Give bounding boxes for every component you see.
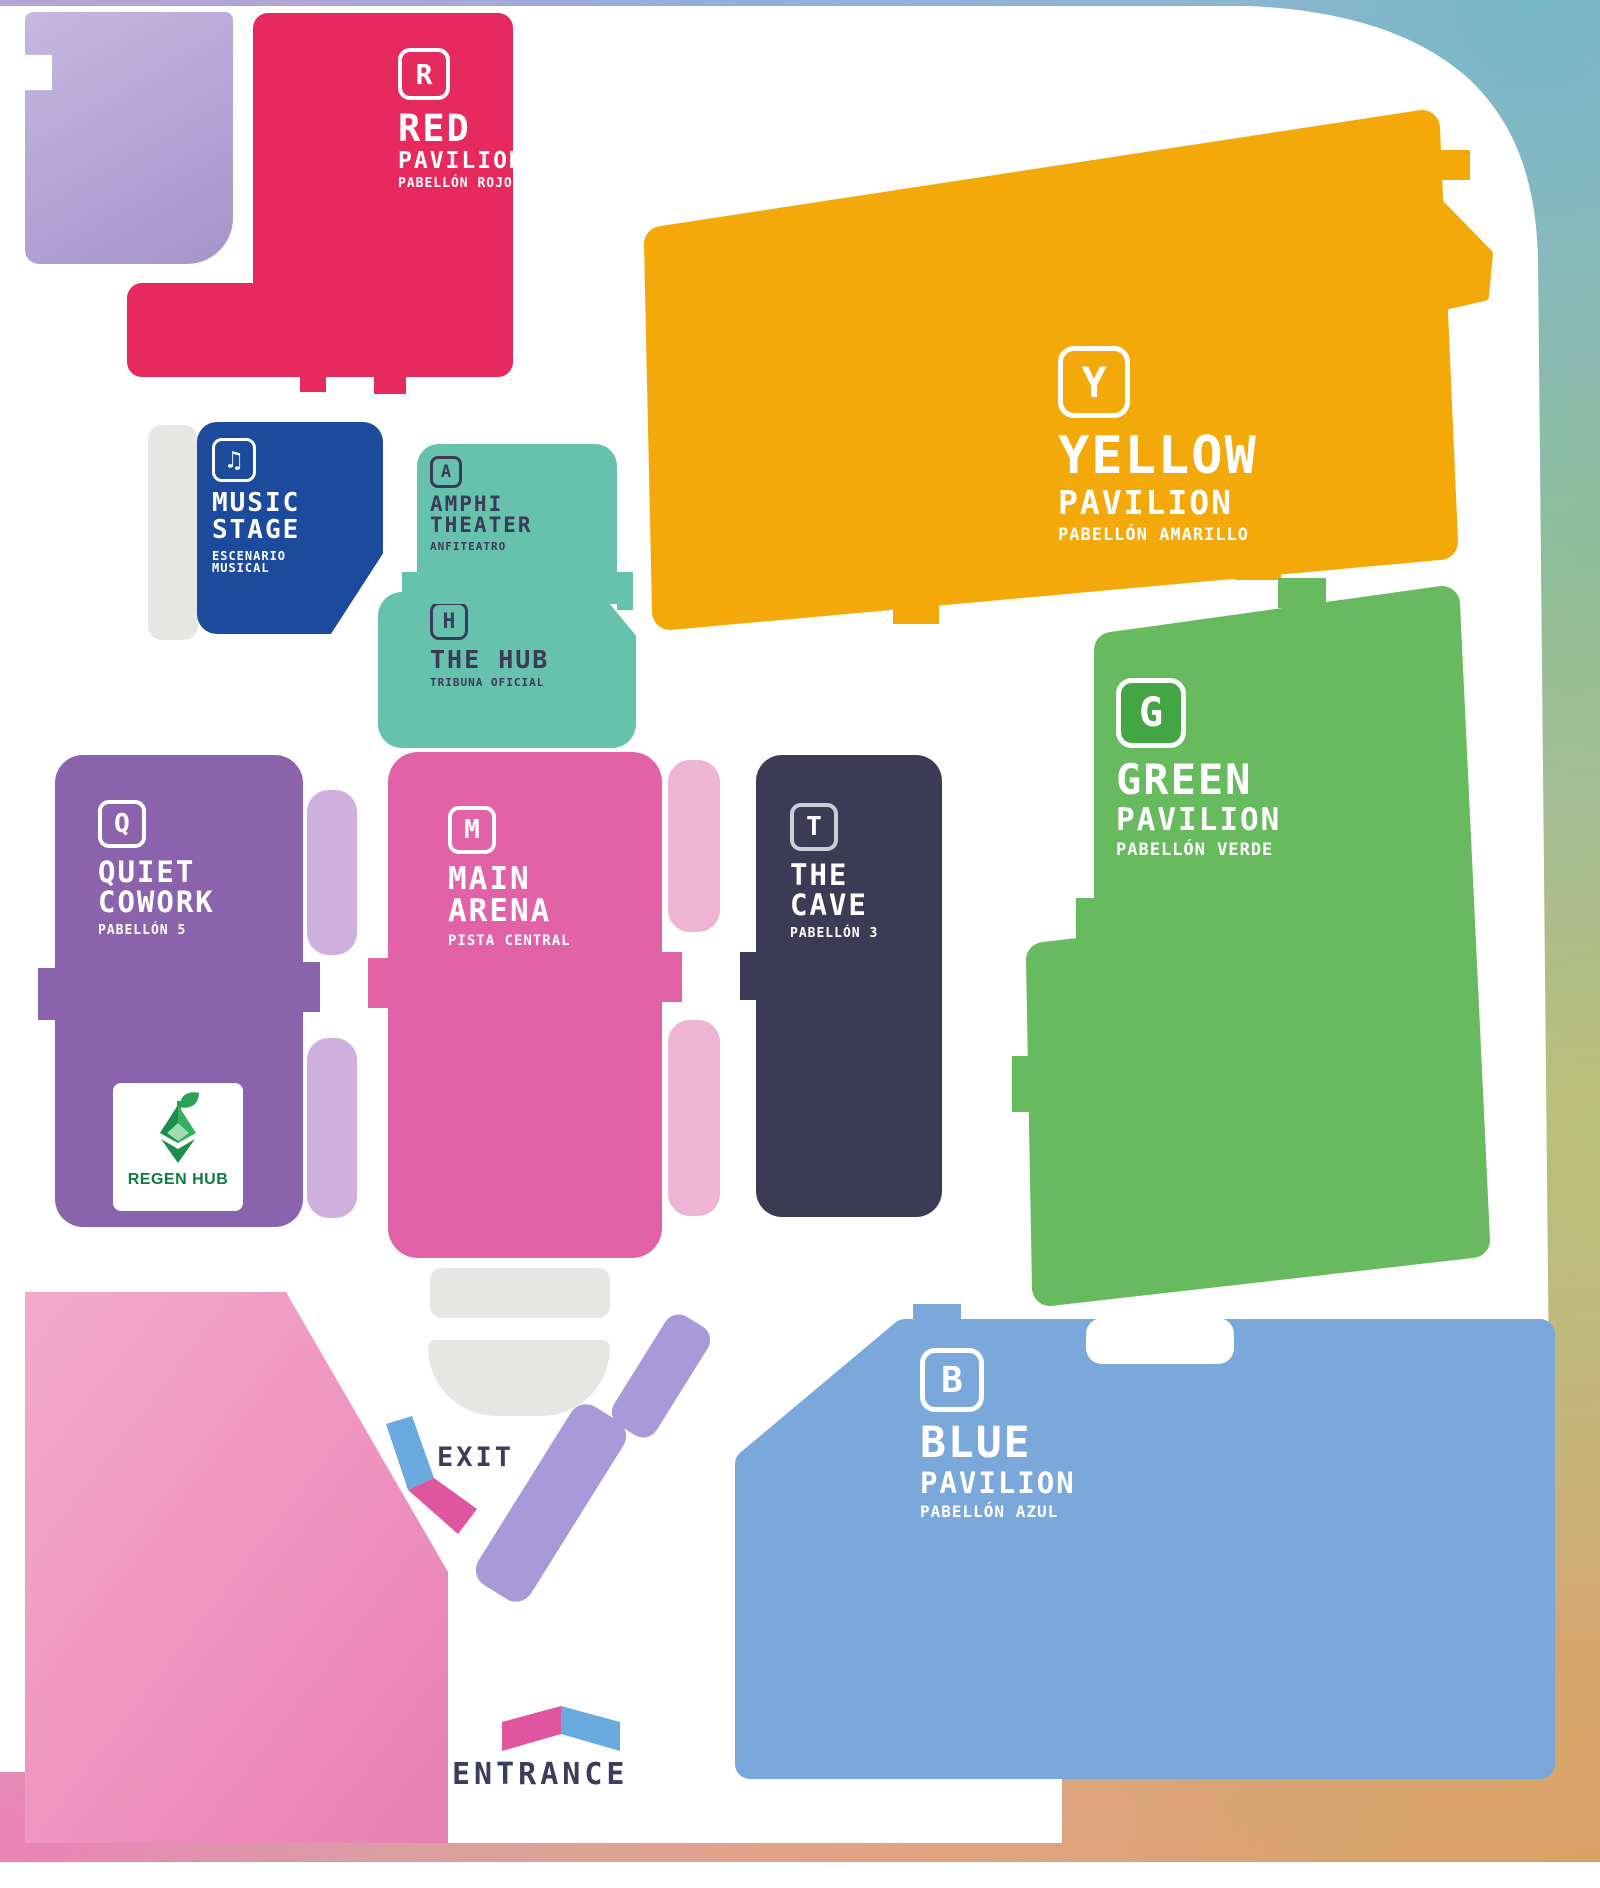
- green-pavilion-name: GREEN: [1116, 759, 1281, 802]
- main-arena-name-line2: ARENA: [448, 896, 662, 928]
- entrance-label: ENTRANCE: [452, 1760, 629, 1791]
- red-pavilion-label: R RED PAVILION PABELLÓN ROJO: [398, 48, 525, 190]
- yellow-pavilion-tab: [1235, 554, 1281, 580]
- quiet-cowork-tab: [38, 968, 58, 1020]
- connector-lilac: [307, 790, 357, 955]
- regen-hub-booth[interactable]: REGEN HUB: [113, 1083, 243, 1211]
- red-pavilion-type: PAVILION: [398, 150, 525, 173]
- red-pavilion-icon: R: [398, 48, 450, 100]
- the-hub-subtitle: TRIBUNA OFICIAL: [430, 677, 636, 688]
- the-hub-building[interactable]: H THE HUB TRIBUNA OFICIAL: [378, 592, 636, 748]
- connector-lilac: [307, 1038, 357, 1218]
- yellow-pavilion-name: YELLOW: [1058, 430, 1258, 483]
- the-cave-name-line1: THE: [790, 861, 942, 891]
- blue-pavilion-icon: B: [920, 1348, 984, 1412]
- amphitheater-icon: A: [430, 456, 462, 488]
- main-arena-tab: [368, 958, 390, 1008]
- service-area-gray: [148, 425, 198, 640]
- green-pavilion-tab: [1076, 898, 1112, 950]
- green-pavilion-icon: G: [1116, 678, 1186, 748]
- exit-label: EXIT: [437, 1444, 514, 1472]
- quiet-cowork-subtitle: PABELLÓN 5: [98, 924, 303, 937]
- quiet-cowork-name-line1: QUIET: [98, 858, 303, 888]
- red-pavilion-subtitle: PABELLÓN ROJO: [398, 177, 525, 190]
- main-arena-icon: M: [448, 806, 496, 854]
- blue-pavilion-type: PAVILION: [920, 1469, 1076, 1499]
- red-pavilion-name: RED: [398, 110, 525, 148]
- yellow-pavilion-subtitle: PABELLÓN AMARILLO: [1058, 527, 1258, 544]
- main-arena-subtitle: PISTA CENTRAL: [448, 934, 662, 948]
- amphitheater-side-tab: [402, 572, 418, 610]
- the-cave-tab: [740, 952, 758, 1000]
- amphitheater-side-tab: [617, 572, 633, 610]
- blue-pavilion-tab: [913, 1304, 961, 1338]
- regen-hub-logo: [150, 1089, 206, 1165]
- connector-pink: [668, 1020, 720, 1216]
- blue-pavilion-shape[interactable]: [750, 1334, 1540, 1764]
- green-pavilion-tab: [1278, 578, 1326, 608]
- service-area-gray: [430, 1268, 610, 1318]
- green-pavilion-label: G GREEN PAVILION PABELLÓN VERDE: [1116, 678, 1281, 860]
- blue-pavilion-name: BLUE: [920, 1422, 1076, 1466]
- blue-pavilion-subtitle: PABELLÓN AZUL: [920, 1504, 1076, 1520]
- map-white-bottom-strip: [0, 1862, 1600, 1888]
- yellow-pavilion-type: PAVILION: [1058, 486, 1258, 520]
- amphitheater-name-line1: AMPHI: [430, 494, 617, 515]
- quiet-cowork-name-line2: COWORK: [98, 888, 303, 918]
- music-note-icon: ♫: [212, 438, 256, 482]
- yellow-pavilion-tab: [1438, 150, 1470, 180]
- amphitheater-building[interactable]: A AMPHI THEATER ANFITEATRO: [417, 444, 617, 604]
- venue-map: ♫ MUSIC STAGE ESCENARIO MUSICAL H THE HU…: [0, 0, 1600, 1888]
- green-pavilion-subtitle: PABELLÓN VERDE: [1116, 842, 1281, 859]
- yellow-pavilion-tab: [893, 596, 939, 624]
- the-cave-building[interactable]: T THE CAVE PABELLÓN 3: [756, 755, 942, 1217]
- music-stage-subtitle-line2: MUSICAL: [212, 562, 383, 574]
- main-arena-name-line1: MAIN: [448, 864, 662, 896]
- the-cave-icon: T: [790, 803, 838, 851]
- quiet-cowork-tab: [300, 962, 320, 1012]
- main-arena-tab: [660, 952, 682, 1002]
- quiet-cowork-icon: Q: [98, 800, 146, 848]
- the-hub-icon: H: [430, 602, 468, 640]
- yellow-pavilion-icon: Y: [1058, 346, 1130, 418]
- red-pavilion-tab: [300, 370, 326, 392]
- music-stage-name-line1: MUSIC: [212, 490, 383, 517]
- connector-pink: [668, 760, 720, 932]
- green-pavilion-type: PAVILION: [1116, 805, 1281, 837]
- music-stage-name-line2: STAGE: [212, 517, 383, 544]
- blue-pavilion-label: B BLUE PAVILION PABELLÓN AZUL: [920, 1348, 1076, 1521]
- lavender-reveal-block: [25, 12, 233, 264]
- the-cave-name-line2: CAVE: [790, 891, 942, 921]
- the-cave-subtitle: PABELLÓN 3: [790, 927, 942, 940]
- main-arena-building[interactable]: M MAIN ARENA PISTA CENTRAL: [388, 752, 662, 1258]
- the-hub-name: THE HUB: [430, 647, 636, 673]
- green-pavilion-tab: [1012, 1056, 1046, 1112]
- amphitheater-name-line2: THEATER: [430, 515, 617, 536]
- regen-hub-label: REGEN HUB: [113, 1171, 243, 1189]
- blue-pavilion-walkway-notch: [1086, 1318, 1234, 1364]
- amphitheater-subtitle: ANFITEATRO: [430, 541, 617, 552]
- red-pavilion-tab: [374, 370, 406, 394]
- yellow-pavilion-label: Y YELLOW PAVILION PABELLÓN AMARILLO: [1058, 346, 1258, 544]
